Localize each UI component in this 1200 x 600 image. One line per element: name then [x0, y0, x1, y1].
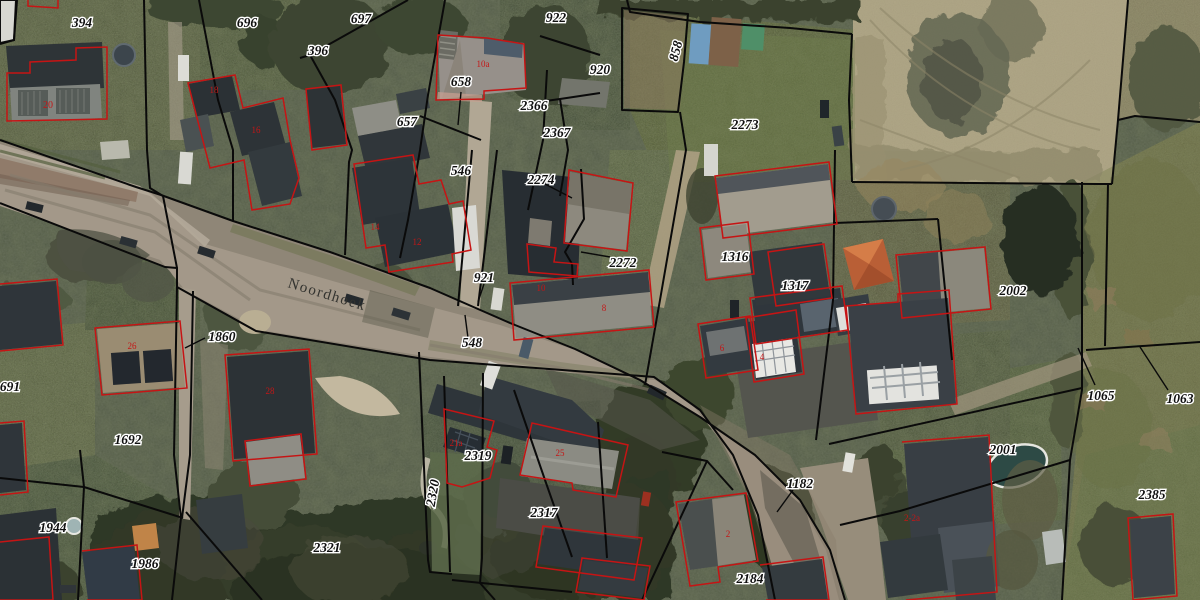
svg-text:6: 6 [720, 343, 725, 353]
svg-text:2: 2 [726, 529, 731, 539]
svg-text:14: 14 [371, 222, 381, 232]
svg-text:2319: 2319 [464, 448, 492, 463]
svg-text:691: 691 [0, 379, 20, 394]
svg-text:2321: 2321 [313, 540, 341, 555]
svg-text:2001: 2001 [989, 442, 1017, 457]
svg-text:2274: 2274 [527, 172, 555, 187]
svg-text:2367: 2367 [543, 125, 572, 140]
svg-text:1692: 1692 [115, 432, 142, 447]
svg-text:1065: 1065 [1088, 388, 1115, 403]
svg-text:657: 657 [397, 114, 419, 129]
svg-text:1063: 1063 [1167, 391, 1194, 406]
svg-text:396: 396 [307, 43, 329, 58]
svg-text:18: 18 [210, 85, 220, 95]
svg-text:1316: 1316 [722, 249, 749, 264]
svg-text:16: 16 [252, 125, 262, 135]
svg-text:920: 920 [590, 62, 611, 77]
svg-text:922: 922 [546, 10, 567, 25]
svg-text:2002: 2002 [999, 283, 1027, 298]
svg-text:1986: 1986 [132, 556, 159, 571]
svg-text:10: 10 [537, 283, 547, 293]
svg-text:1944: 1944 [40, 520, 67, 535]
svg-text:696: 696 [237, 15, 258, 30]
svg-text:25: 25 [556, 448, 566, 458]
svg-text:2317: 2317 [530, 505, 559, 520]
svg-text:10a: 10a [477, 59, 490, 69]
svg-text:1182: 1182 [787, 476, 814, 491]
svg-text:26: 26 [128, 341, 138, 351]
svg-text:2184: 2184 [736, 571, 764, 586]
svg-text:1317: 1317 [782, 278, 810, 293]
svg-text:4: 4 [760, 352, 765, 362]
svg-text:394: 394 [71, 15, 93, 30]
svg-text:658: 658 [451, 74, 472, 89]
svg-text:21a: 21a [450, 438, 463, 448]
svg-text:548: 548 [462, 335, 483, 350]
svg-text:2-2a: 2-2a [904, 513, 920, 523]
svg-text:2272: 2272 [609, 255, 637, 270]
svg-text:2273: 2273 [731, 117, 759, 132]
svg-text:697: 697 [351, 11, 373, 26]
svg-text:20: 20 [43, 100, 53, 111]
svg-text:8: 8 [602, 303, 607, 313]
svg-text:546: 546 [451, 163, 472, 178]
svg-text:2385: 2385 [1138, 487, 1166, 502]
svg-text:1860: 1860 [209, 329, 236, 344]
svg-text:921: 921 [474, 270, 494, 285]
svg-text:28: 28 [266, 386, 276, 396]
svg-text:12: 12 [413, 237, 422, 247]
svg-text:2366: 2366 [520, 98, 548, 113]
